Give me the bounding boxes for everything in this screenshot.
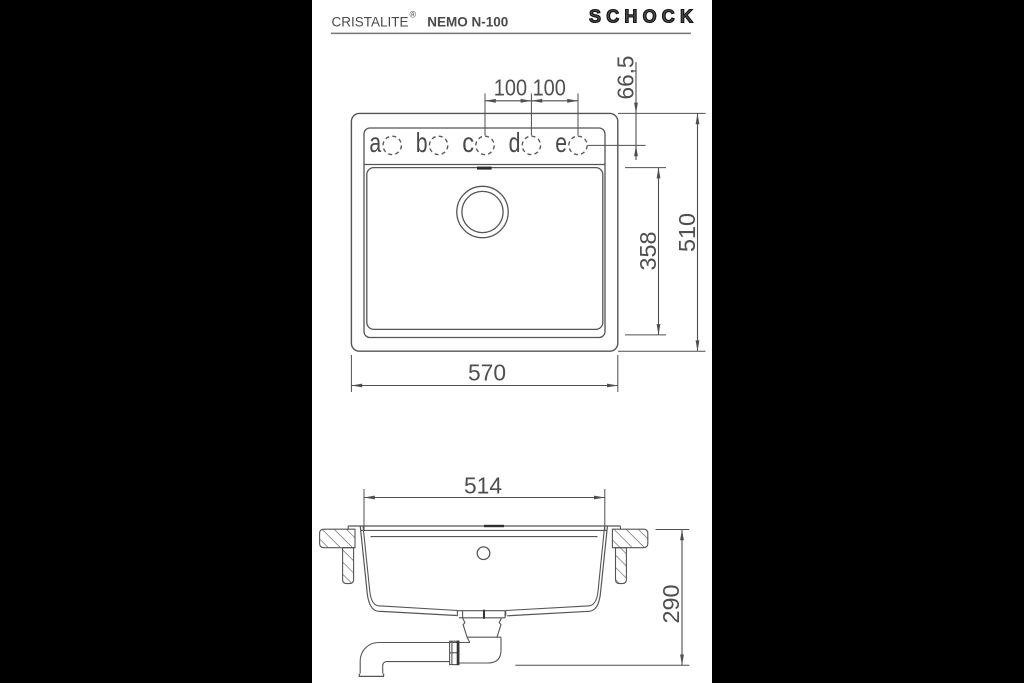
- svg-text:CRISTALITE: CRISTALITE: [332, 15, 409, 30]
- svg-text:510: 510: [674, 213, 700, 252]
- svg-text:e: e: [555, 127, 567, 158]
- svg-text:358: 358: [635, 232, 661, 271]
- svg-text:d: d: [509, 127, 521, 158]
- svg-text:100 100: 100 100: [494, 75, 566, 101]
- svg-text:290: 290: [658, 585, 684, 624]
- svg-text:b: b: [416, 127, 428, 158]
- svg-text:514: 514: [464, 473, 502, 499]
- svg-text:570: 570: [468, 360, 506, 386]
- svg-text:SCHOCK: SCHOCK: [589, 7, 698, 27]
- svg-text:c: c: [462, 127, 474, 158]
- svg-text:®: ®: [410, 10, 417, 20]
- svg-text:66,5: 66,5: [613, 56, 639, 100]
- svg-text:NEMO N-100: NEMO N-100: [427, 15, 508, 30]
- svg-text:a: a: [369, 127, 381, 158]
